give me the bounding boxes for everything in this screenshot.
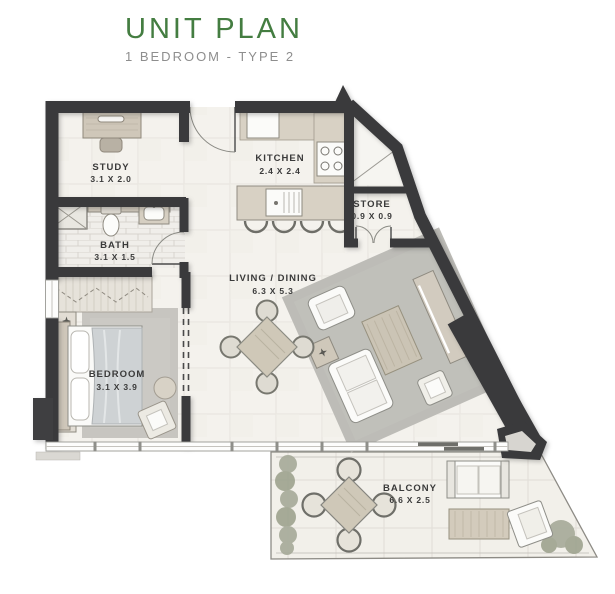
unit-plan-page: UNIT PLAN 1 BEDROOM - TYPE 2 <box>0 0 615 594</box>
exterior-pier <box>33 398 53 440</box>
room-label-living: LIVING / DINING <box>229 273 317 284</box>
pillow <box>71 378 89 420</box>
room-dims-study: 3.1 X 2.0 <box>90 174 131 184</box>
wardrobe <box>52 276 152 312</box>
pillow <box>71 331 89 373</box>
room-label-bath: BATH <box>100 240 130 251</box>
pouf <box>154 377 176 399</box>
toilet <box>101 205 121 236</box>
stove <box>317 142 345 176</box>
desk-chair <box>100 138 122 152</box>
room-dims-kitchen: 2.4 X 2.4 <box>259 166 300 176</box>
bedroom-window <box>46 280 59 318</box>
room-dims-store: 0.9 X 0.9 <box>351 211 392 221</box>
room-label-study: STUDY <box>92 162 129 173</box>
balcony-coffee-table <box>449 509 509 539</box>
window-ledge <box>36 452 80 460</box>
room-label-balcony: BALCONY <box>383 483 437 494</box>
room-dims-bath: 3.1 X 1.5 <box>94 252 135 262</box>
room-label-bedroom: BEDROOM <box>89 369 146 380</box>
balcony: BALCONY 6.6 X 2.5 <box>271 452 597 559</box>
kitchen-island <box>237 186 350 220</box>
balcony-sofa <box>447 461 509 498</box>
fridge <box>247 112 279 138</box>
floor-plan-svg: BALCONY 6.6 X 2.5 <box>0 0 615 594</box>
sliding-door-panel <box>444 447 484 451</box>
room-label-kitchen: KITCHEN <box>255 153 304 164</box>
sliding-door-panel <box>418 443 458 447</box>
room-dims-living: 6.3 X 5.3 <box>252 286 293 296</box>
room-label-store: STORE <box>353 199 391 210</box>
room-dims-bedroom: 3.1 X 3.9 <box>96 382 137 392</box>
desk <box>83 112 141 138</box>
room-dims-balcony: 6.6 X 2.5 <box>389 495 430 505</box>
